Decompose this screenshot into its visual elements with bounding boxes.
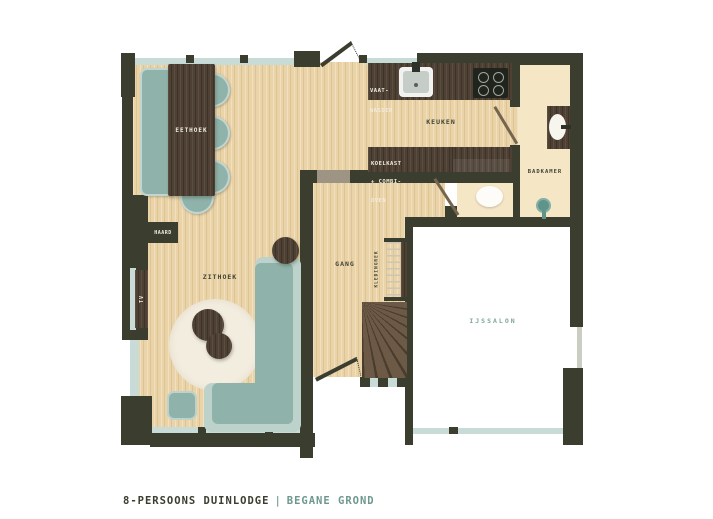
terrace-door-swing: [350, 41, 361, 61]
wall-bath-toilet-divider: [513, 183, 520, 217]
hallway-label: GANG: [335, 260, 355, 268]
window-parlor-bottom: [413, 428, 563, 434]
side-table: [272, 237, 299, 264]
dishwasher-label-line1: VAAT-: [370, 88, 393, 95]
sink-drain: [414, 83, 418, 87]
shower-stem: [542, 211, 546, 219]
window-mullion: [240, 55, 248, 63]
cabinet-highlight: [453, 159, 510, 172]
caption: 8-PERSOONS DUINLODGE | BEGANE GROND: [123, 495, 375, 507]
dishwasher-label: VAAT- WASSER: [370, 75, 393, 127]
sidelight-mullion: [378, 377, 388, 387]
fridge-oven-label-line2: + COMBI-: [371, 179, 402, 185]
wardrobe-hangers: [386, 242, 402, 297]
sidelight-mullion: [360, 377, 370, 387]
wall-mid-horizontal: [405, 217, 583, 227]
burner: [478, 85, 489, 96]
wall-entry-pier: [294, 51, 320, 67]
burner: [493, 85, 504, 96]
wall-bathroom-right: [570, 53, 583, 227]
wall-pocket-segment: [317, 170, 350, 183]
fridge-oven-label-line3: OVEN: [371, 198, 402, 204]
wall-hallway-left: [300, 170, 313, 458]
tv-unit: TV: [135, 270, 148, 328]
icecream-parlor-floor: [413, 227, 570, 428]
burner: [493, 72, 504, 83]
wall-bottom-left-corner: [121, 396, 152, 445]
dining-table: EETHOEK: [168, 64, 215, 196]
wardrobe-frame-bottom: [384, 297, 408, 301]
dishwasher-label-line2: WASSER: [370, 108, 393, 115]
ottoman: [167, 391, 197, 420]
dining-label: EETHOEK: [175, 127, 207, 134]
caption-separator: |: [274, 495, 281, 507]
wall-bottom-right-corner: [563, 368, 583, 445]
wall-left-upper: [122, 53, 133, 195]
window-mullion: [449, 427, 458, 434]
fridge-oven-label-line1: KOELKAST: [371, 161, 402, 167]
tv-label: TV: [139, 295, 145, 303]
sidelight-mullion: [397, 377, 407, 387]
icecream-parlor-label: IJSSALON: [469, 317, 516, 325]
wall-bottom: [150, 433, 315, 447]
bathroom-label: BADKAMER: [528, 169, 563, 175]
fireplace-label: HAARD: [154, 230, 172, 236]
fridge-oven-label: KOELKAST + COMBI- OVEN: [371, 148, 402, 217]
caption-title: 8-PERSOONS DUINLODGE: [123, 495, 269, 507]
wardrobe-label: KLEDINGREK: [375, 250, 380, 287]
wall-parlor-right-upper: [570, 227, 583, 327]
window-left: [130, 338, 139, 398]
sitting-area-label: ZITHOEK: [203, 273, 237, 281]
caption-floor: BEGANE GROND: [287, 495, 375, 507]
wardrobe-rail: [401, 242, 407, 297]
vanity-faucet: [561, 125, 571, 129]
sofa-seat-horizontal: [212, 383, 293, 424]
staircase: [362, 302, 407, 378]
sink-basin: [403, 71, 429, 93]
toilet: [476, 186, 503, 207]
window-parlor-right: [577, 327, 582, 368]
fireplace: HAARD: [148, 222, 178, 243]
window-mullion: [186, 55, 194, 63]
kitchen-label: KEUKEN: [426, 118, 455, 126]
coffee-table-small: [206, 333, 232, 359]
floor-plan: VAAT- WASSER KEUKEN KOELKAST + COMBI- OV…: [0, 0, 713, 519]
burner: [478, 72, 489, 83]
sink-faucet: [412, 62, 420, 72]
